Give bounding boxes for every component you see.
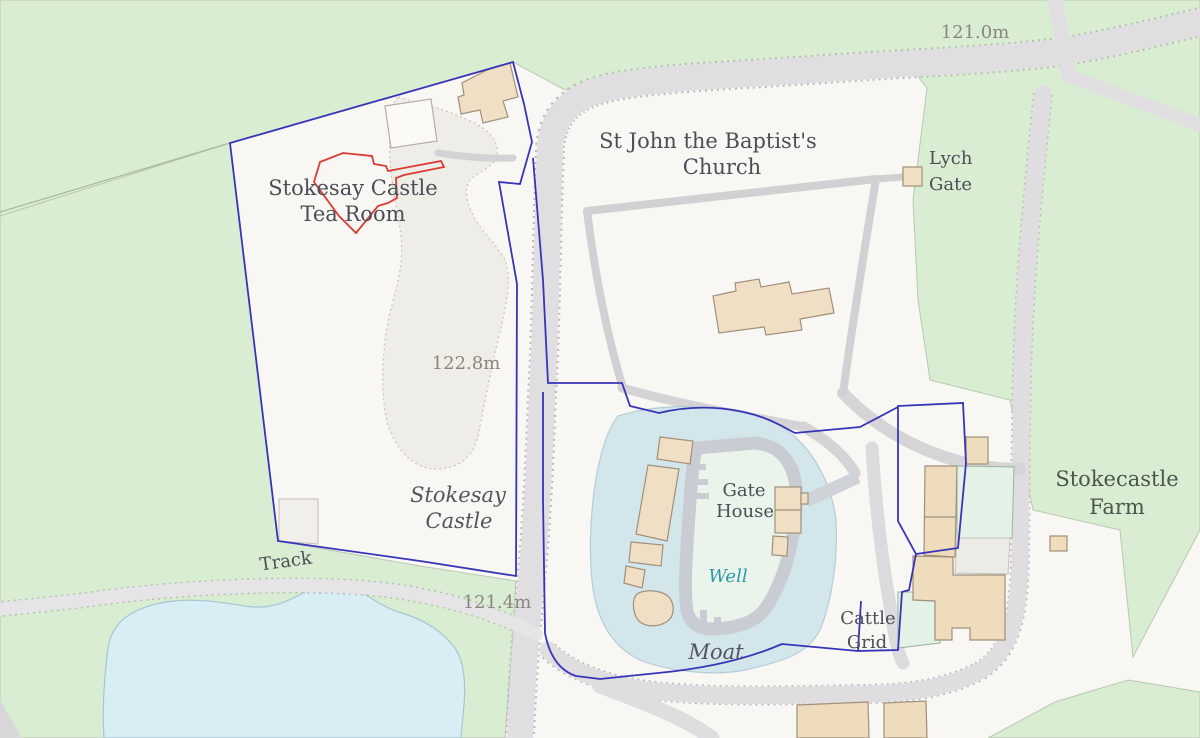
gate-house-tab [801,493,808,504]
lych-gate-building [903,167,922,186]
south-tower [633,591,673,626]
farm-outbuilding-east [1050,536,1067,551]
church-label-line2: Church [683,155,761,179]
corner-yard [279,499,318,544]
lych-gate-path [876,177,904,179]
farm-yard [955,538,1010,574]
farm-barn-tall [924,466,957,557]
cattle-grid-label-line2: Grid [847,632,887,653]
lych-gate-label-line1: Lych [929,148,973,169]
cattle-grid-label-line1: Cattle [840,608,895,629]
well-label: Well [708,566,747,587]
lych-gate-label-line2: Gate [929,174,972,195]
elevation-label-top: 121.0m [941,22,1010,43]
tea-room-outbuilding [385,99,437,148]
farm-label-line1: Stokecastle [1055,467,1178,491]
solar-block [629,542,663,566]
gate-house-label-line1: Gate [723,480,766,501]
castle-label-line2: Castle [426,509,493,533]
church-label-line1: St John the Baptist's [599,129,817,153]
gate-house-label-line2: House [716,501,774,522]
tea-room-label-line2: Tea Room [300,202,405,226]
north-tower [657,437,693,464]
farm-label-line2: Farm [1089,495,1145,519]
map-svg: 121.0m St John the Baptist's Church Lych… [0,0,1200,738]
tea-room-label-line1: Stokesay Castle [268,176,437,200]
map-canvas[interactable]: 121.0m St John the Baptist's Church Lych… [0,0,1200,738]
moat-label: Moat [687,640,744,664]
gate-house-annex [772,536,788,556]
elevation-label-mid: 122.8m [432,353,501,374]
south-building-1 [797,702,869,738]
castle-label-line1: Stokesay [410,483,507,507]
south-building-2 [884,701,927,738]
elevation-label-bottom: 121.4m [463,592,532,613]
farm-outbuilding-north [966,437,988,464]
